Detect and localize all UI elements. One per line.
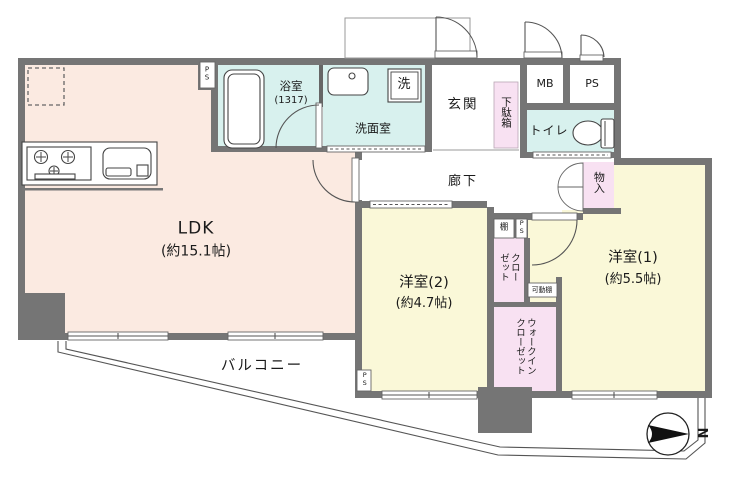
pipe-space-label: PS (585, 77, 599, 91)
bath-label: 浴室 (280, 79, 303, 93)
ldk-size-label: (約15.1帖) (161, 243, 231, 261)
compass-icon (647, 413, 689, 455)
bedroom1-size-label: (約5.5帖) (605, 272, 662, 288)
kitchen-counter (22, 142, 163, 191)
storage-closet-label: 物入 (592, 171, 605, 197)
walk-in-closet-label: ウォークインクローゼット (513, 315, 535, 381)
pipe-space-shelf-label: PS (517, 219, 524, 237)
window (572, 391, 657, 399)
balcony-label: バルコニー (221, 357, 303, 375)
shelf-label: 棚 (500, 223, 509, 234)
washbasin-icon (328, 68, 368, 95)
bath-size-label: (1317) (274, 95, 307, 108)
bedroom1-label: 洋室(1) (608, 249, 658, 267)
window (68, 332, 168, 340)
bedroom2-label: 洋室(2) (399, 274, 449, 292)
floor-plan-drawing (0, 0, 732, 478)
entrance-label: 玄関 (448, 97, 479, 114)
pipe-space-bedroom2-label: PS (360, 371, 367, 389)
compass-north-label: N (693, 428, 709, 439)
mb-door (524, 22, 562, 58)
pipe-space-top-label: PS (203, 66, 211, 85)
window (228, 332, 323, 340)
washroom-label: 洗面室 (355, 122, 391, 137)
bedroom2-size-label: (約4.7帖) (396, 296, 453, 312)
closet-label: クローゼット (497, 250, 519, 288)
washing-machine-label: 洗 (397, 77, 410, 93)
kitchen-sink-icon (103, 148, 151, 179)
floor-plan: PS 浴室 (1317) 洗面室 洗 玄関 下駄箱 MB PS トイレ 廊下 物… (0, 0, 732, 478)
movable-shelf-label: 可動棚 (532, 286, 552, 294)
window (382, 391, 477, 399)
corridor-label: 廊下 (448, 174, 478, 190)
ps-door (580, 35, 604, 61)
shoe-box-label: 下駄箱 (500, 96, 512, 132)
stove-icon (27, 147, 91, 180)
bathtub-icon (224, 70, 264, 148)
toilet-label: トイレ (529, 124, 568, 139)
meter-box-label: MB (536, 77, 553, 91)
ldk-label: LDK (178, 218, 215, 239)
